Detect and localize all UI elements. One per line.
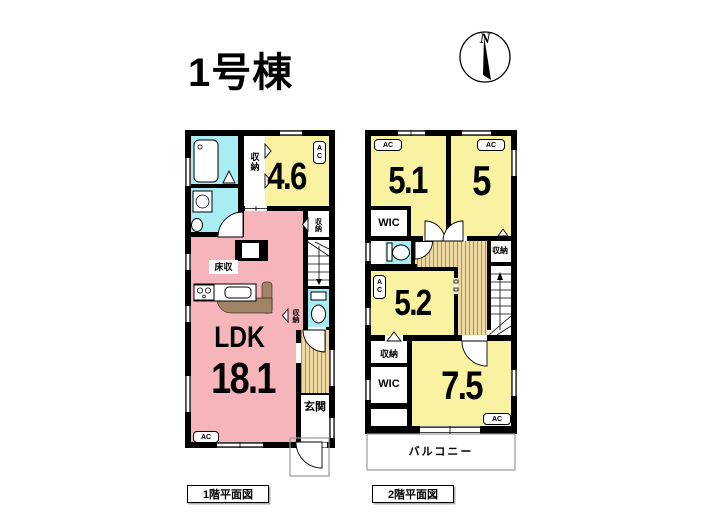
- compass: N: [457, 24, 513, 84]
- floor1-plan: 収納 AC 4.6 収納 床収 収納 LDK 18.1 玄関 AC: [185, 130, 335, 478]
- room46-size: 4.6: [252, 154, 322, 200]
- page-title: 1号棟: [188, 40, 293, 98]
- wic-bottom-label: WIC: [371, 377, 407, 391]
- kitchen-sink-icon: [225, 287, 251, 298]
- wic-top-label: WIC: [371, 216, 407, 230]
- ac-label-room5: AC: [477, 139, 505, 151]
- toilet-tank-1f: [311, 292, 326, 300]
- balcony-label: バルコニー: [367, 444, 515, 460]
- ldk-name: LDK: [205, 322, 275, 354]
- floor-storage-label: 床収: [209, 260, 238, 274]
- ldk-upper: [244, 211, 303, 237]
- toilet-bowl-icon-2f: [393, 245, 410, 260]
- ac-label-ldk: AC: [193, 431, 219, 443]
- storage-box: [242, 243, 259, 258]
- floor2-plan: AC AC 5.1 5 WIC 収納 AC 5.2 収納 WIC 7.5 AC …: [365, 130, 517, 475]
- closet-bottom-label: 収納: [371, 348, 407, 360]
- entrance-step-line: [301, 393, 329, 395]
- closet-label-top-right: 収納: [310, 214, 326, 235]
- ac-label-room51: AC: [374, 139, 402, 151]
- floor2-caption: 2階平面図: [372, 485, 454, 503]
- washbasin-icon: [192, 219, 203, 232]
- room51-size: 5.1: [376, 158, 439, 204]
- ldk-size: 18.1: [199, 354, 288, 404]
- bathtub-icon: [194, 140, 218, 182]
- toilet-tank-2f: [387, 243, 392, 261]
- entrance-label: 玄関: [301, 400, 329, 414]
- floorplan-page: 1号棟 N: [0, 0, 705, 525]
- compass-north-label: N: [479, 31, 492, 47]
- ac-label-room75: AC: [483, 413, 511, 425]
- floor1-caption: 1階平面図: [187, 485, 269, 503]
- entrance-door-arc: [296, 442, 322, 468]
- toilet-bowl-icon-1f: [312, 305, 326, 323]
- closet-stairs-label: 収納: [489, 245, 511, 257]
- room75-size: 7.5: [421, 362, 502, 410]
- room5-size: 5: [456, 156, 505, 206]
- closet-label-hall: 収納: [289, 304, 302, 328]
- hallway-2f-vertical: [458, 267, 487, 335]
- room52-size: 5.2: [378, 282, 446, 324]
